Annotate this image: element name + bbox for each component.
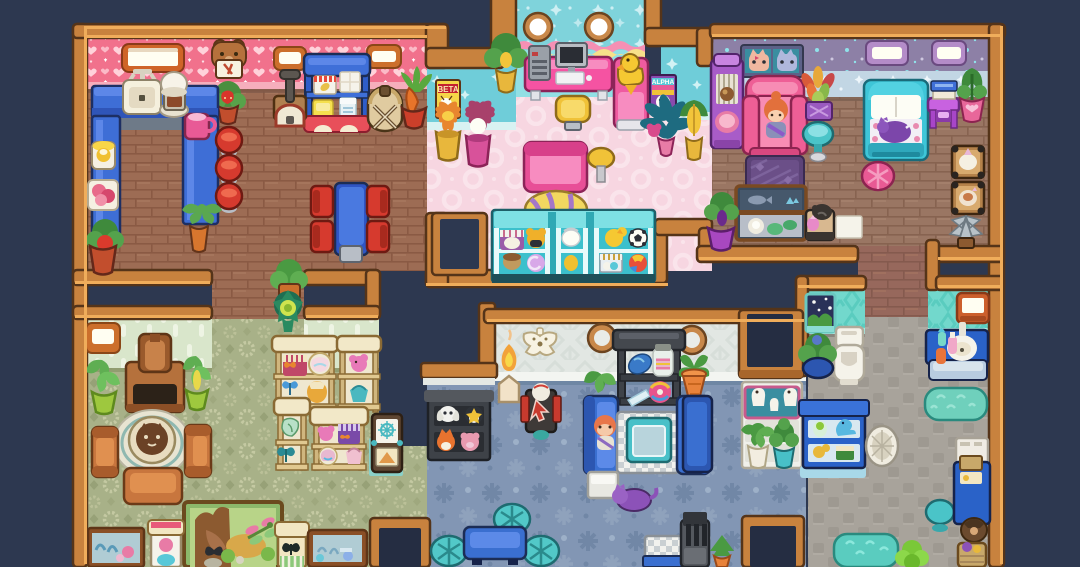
svg-text:BETA: BETA <box>437 85 458 94</box>
svg-text:ALPHA: ALPHA <box>652 79 675 86</box>
